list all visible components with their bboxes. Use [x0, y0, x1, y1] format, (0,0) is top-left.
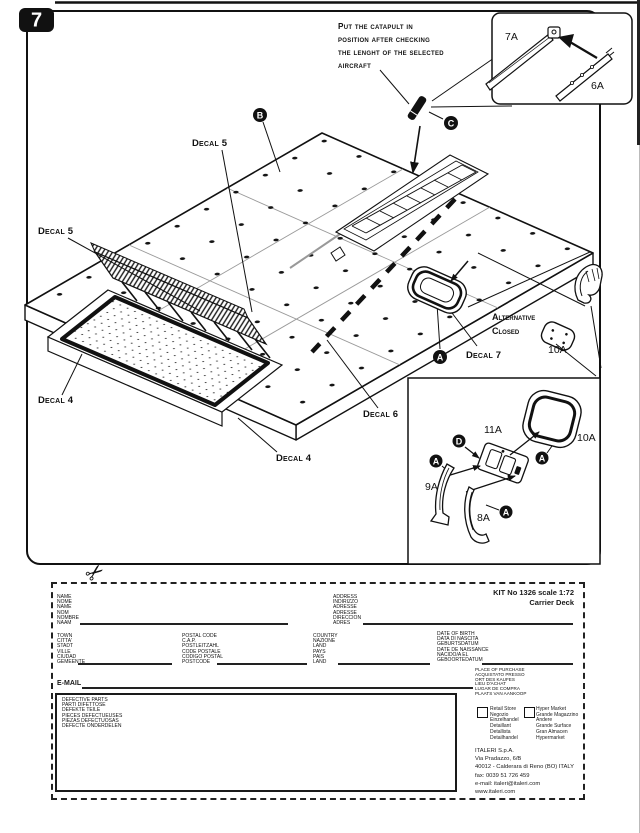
decal5-label-upper: Decal 5	[192, 138, 228, 149]
form-country-labels: COUNTRY NAZIONE LAND PAYS PAIS LAND	[313, 634, 338, 665]
catapult-parts-inset: 7A 6A	[486, 13, 632, 104]
instruction-note-line-3: the lenght of the selected	[338, 48, 444, 57]
part-7a-label: 7A	[505, 31, 518, 43]
defective-parts-labels: DEFECTIVE PARTS PARTI DIFETTOSE DEFEKTE …	[62, 698, 122, 729]
form-postal-line	[217, 663, 307, 665]
form-town-labels: TOWN CITTA' STADT VILLE CIUDAD GEMEENTE	[57, 634, 85, 665]
hatch-parts-inset: 10A 11A D A A A 9A	[408, 378, 600, 564]
decal7-label: Decal 7	[466, 350, 501, 361]
form-email-line	[82, 687, 473, 689]
callout-a-letter-deck: A	[437, 353, 444, 363]
part-9a-label: 9A	[425, 481, 438, 493]
callout-b-letter: B	[257, 111, 264, 121]
decal4-label-right: Decal 4	[276, 453, 312, 464]
part-8a-label: 8A	[477, 512, 490, 524]
instruction-note-line-1: Put the catapult in	[338, 22, 413, 31]
form-address-labels: ADDRESS INDIRIZZO ADRESSE ADRESSE DIRECC…	[333, 595, 361, 626]
form-email-label: E-MAIL	[57, 680, 81, 687]
part-6a-label: 6A	[591, 80, 604, 92]
company-address: ITALERI S.p.A. Via Pradazzo, 6/B 40012 -…	[475, 747, 574, 796]
form-name-labels: NAME NOME NAME NOM NOMBRE NAAM	[57, 595, 79, 626]
form-country-line	[338, 663, 430, 665]
form-birth-line	[482, 663, 573, 665]
step-number: 7	[31, 10, 42, 32]
step-diagram: 7	[0, 0, 640, 575]
callout-a-letter-9a: A	[433, 457, 440, 467]
retail-store-checkbox	[477, 707, 488, 718]
hyper-market-checkbox	[524, 707, 535, 718]
instruction-note-line-4: aircraft	[338, 61, 371, 70]
instruction-note-line-2: position after checking	[338, 35, 430, 44]
callout-a-letter-8a: A	[503, 508, 510, 518]
form-birth-labels: DATE OF BIRTH DATA DI NASCITA GEBURTSDAT…	[437, 632, 489, 663]
form-town-line	[78, 663, 172, 665]
decal5-label-left: Decal 5	[38, 226, 74, 237]
form-name-line	[80, 623, 288, 625]
part-11a-label: 11A	[484, 424, 502, 436]
part-10a-label: 10A	[577, 432, 596, 444]
decal6-label: Decal 6	[363, 409, 398, 420]
hyper-market-labels: Hyper Market Grande Magazzino Andere Gra…	[536, 707, 578, 741]
closed-label: Closed	[492, 326, 520, 336]
alternative-label: Alternative	[492, 312, 535, 322]
place-of-purchase-labels: PLACE OF PURCHASE ACQUISTATO PRESSO ORT …	[475, 668, 526, 697]
retail-store-labels: Retail Store Negozio Einzelhandel Detail…	[490, 707, 519, 741]
instruction-sheet-page: 7	[0, 0, 640, 833]
kit-info: KIT No 1326 scale 1:72 Carrier Deck	[400, 588, 574, 608]
callout-a-letter-10a: A	[539, 454, 546, 464]
decal4-label-left: Decal 4	[38, 395, 74, 406]
callout-c-letter: C	[448, 119, 455, 129]
form-address-line	[363, 623, 573, 625]
callout-d-letter: D	[456, 437, 463, 447]
form-postal-labels: POSTAL CODE C.A.P. POSTLEITZAHL CODE POS…	[182, 634, 223, 665]
